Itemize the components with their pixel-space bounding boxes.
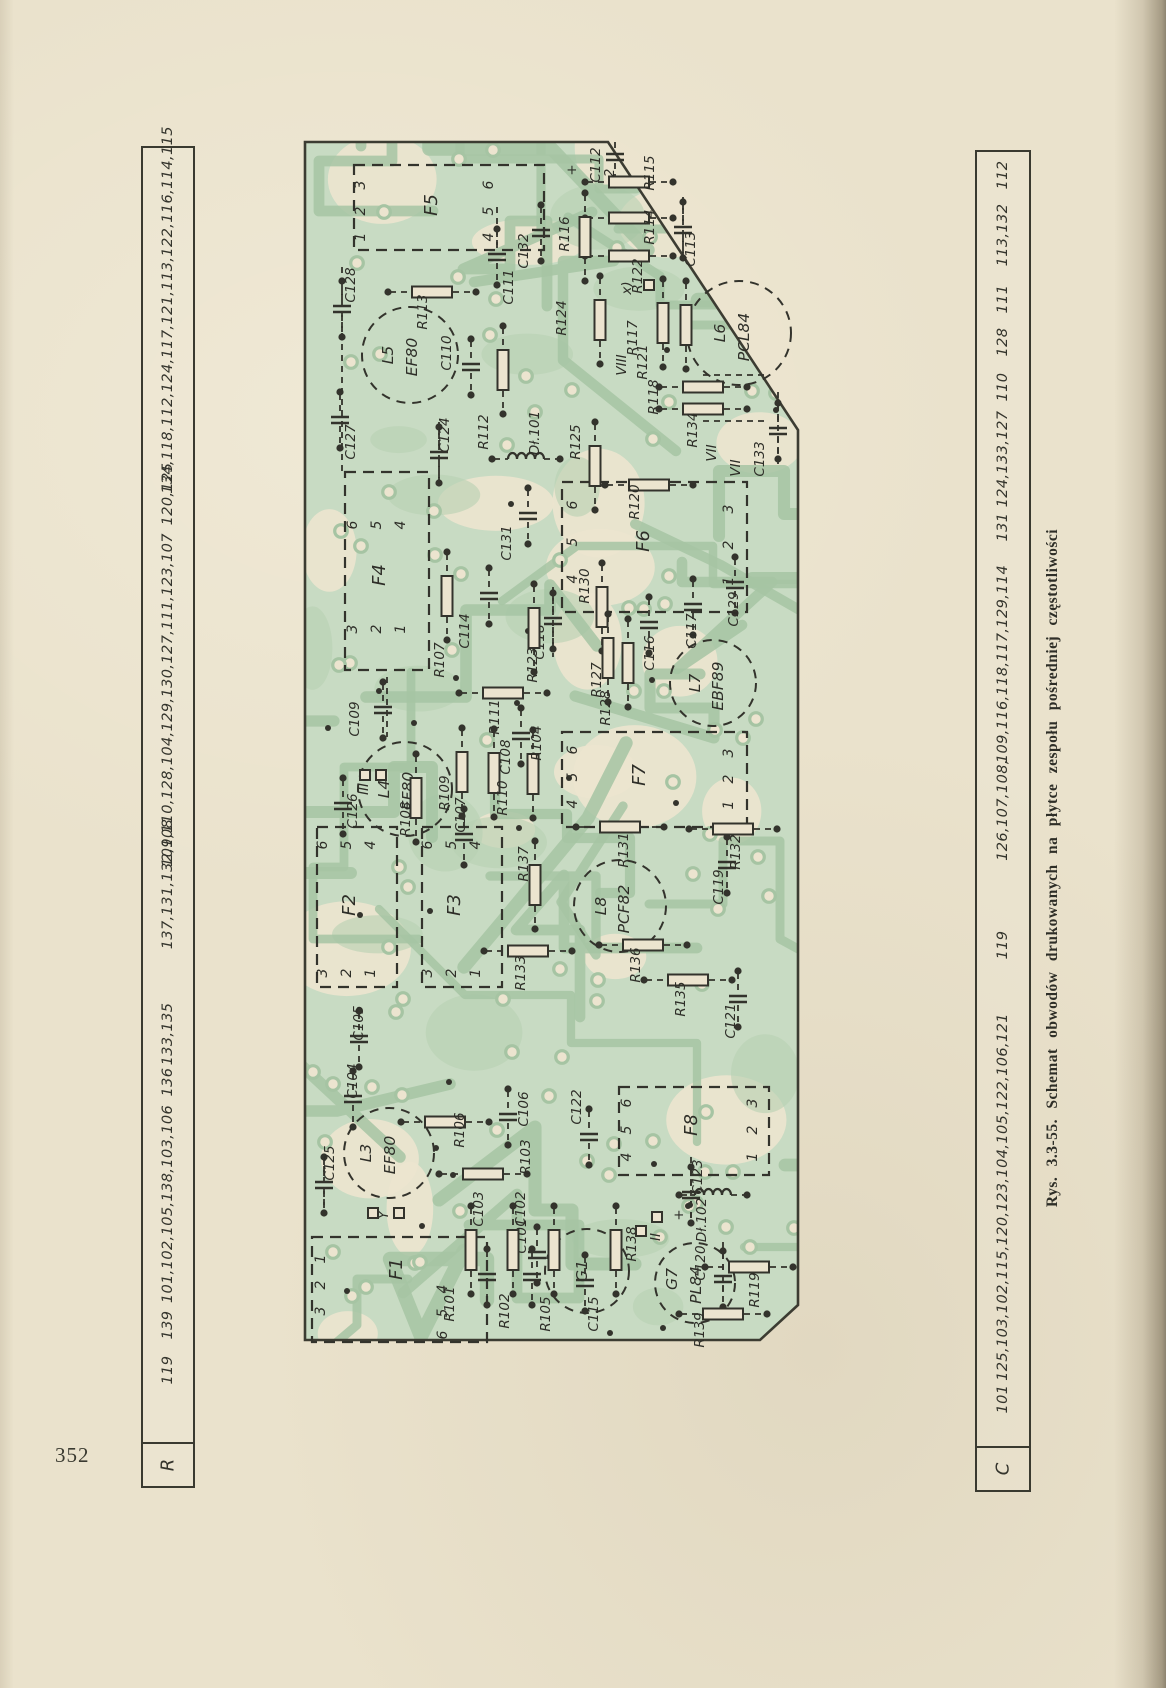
component-label-R128: R128 (598, 690, 614, 725)
r-index-group: 139 (160, 1311, 176, 1340)
pad (628, 685, 641, 698)
solder-dot (683, 941, 690, 948)
solder-dot (499, 322, 506, 329)
pad (506, 1046, 519, 1059)
solder-dot (485, 564, 492, 571)
c-index-group: 109,116,118,117,129,114 (995, 565, 1011, 763)
component-label-R107: R107 (432, 642, 448, 678)
component-label-R123: R123 (525, 647, 541, 682)
solder-dot (458, 812, 465, 819)
c-index-group: 125,103,102,115,120,123,104,105,122,106,… (995, 1013, 1011, 1381)
resistor-body (658, 303, 669, 343)
tube-label: EF80 (403, 338, 421, 377)
solder-dot (596, 360, 603, 367)
solder-dot (550, 1202, 557, 1209)
connector-label: F4 (369, 564, 390, 586)
pin-label: 2 (721, 774, 737, 783)
solder-dot (467, 1202, 474, 1209)
pin-label: 3 (721, 505, 737, 514)
pad (752, 851, 765, 864)
tube-label: L6 (711, 324, 729, 343)
pin-label: 6 (565, 500, 581, 509)
component-label-C128: C128 (343, 267, 359, 302)
solder-dot (504, 1085, 511, 1092)
r-index-group: 101,102,105,138,103,106 (160, 1105, 176, 1303)
component-label-R139: R139 (692, 1312, 708, 1347)
pin-label: 5 (369, 520, 385, 529)
resistor-body (508, 1230, 519, 1270)
solder-dot (719, 1247, 726, 1254)
component-label-C103: C103 (471, 1191, 487, 1226)
solder-dot (504, 1141, 511, 1148)
pin-label: 2 (369, 624, 385, 633)
pad (603, 1169, 616, 1182)
solder-dot (731, 553, 738, 560)
c-index-group: 113,132 (995, 204, 1011, 267)
solder-dot (376, 688, 382, 694)
component-label-R115: R115 (642, 155, 658, 190)
pin-label: 4 (565, 800, 581, 809)
solder-dot (743, 1191, 750, 1198)
c-index-group: 124,133,127 (995, 411, 1011, 508)
solder-dot (655, 405, 662, 412)
pad (487, 144, 500, 157)
pad-square (636, 1226, 646, 1236)
pin-label: 6 (565, 745, 581, 754)
component-label-Dł.102: Dł.102 (694, 1198, 710, 1242)
solder-dot (595, 941, 602, 948)
c-index-group: 101 (995, 1385, 1011, 1414)
solder-dot (483, 1245, 490, 1252)
solder-dot (598, 559, 605, 566)
solder-dot (453, 675, 459, 681)
solder-dot (669, 252, 676, 259)
pad (345, 356, 358, 369)
pin-label: 1 (468, 969, 484, 978)
pin-label: 4 (481, 233, 497, 242)
solder-dot (435, 1170, 442, 1177)
solder-dot (734, 967, 741, 974)
component-label-R109: R109 (437, 775, 453, 810)
annotation-text: x) (619, 281, 635, 295)
pin-label: 3 (420, 969, 436, 978)
solder-dot (612, 1202, 619, 1209)
solder-dot (581, 178, 588, 185)
r-index-table: 134,118,112,124,117,121,113,122,116,114,… (141, 146, 195, 1488)
tube-label: L4 (375, 780, 393, 799)
pad (744, 1241, 757, 1254)
solder-dot (581, 1251, 588, 1258)
component-label-C129: C129 (726, 591, 742, 626)
pad (396, 1089, 409, 1102)
resistor-body (623, 643, 634, 683)
resistor-body (442, 576, 453, 616)
resistor-body (729, 1262, 769, 1273)
pin-label: 4 (468, 841, 484, 850)
pin-label: 2 (339, 968, 355, 977)
solder-dot (549, 589, 556, 596)
pad-square (644, 280, 654, 290)
solder-dot (537, 257, 544, 264)
c-index-group: 131 (995, 513, 1011, 542)
pad (491, 1124, 504, 1137)
pad (393, 861, 406, 874)
pad (750, 713, 763, 726)
c-index-group: 111 (995, 285, 1011, 314)
solder-dot (488, 455, 495, 462)
pin-label: 6 (435, 1330, 451, 1339)
pin-label: 5 (619, 1125, 635, 1134)
tube-label: EBF89 (709, 661, 727, 710)
solder-dot (467, 335, 474, 342)
solder-dot (412, 750, 419, 757)
tube-label: G1 (573, 1260, 591, 1282)
pad (520, 370, 533, 383)
pad (355, 540, 368, 553)
solder-dot (533, 1279, 540, 1286)
component-label-C127: C127 (343, 424, 359, 460)
component-label-C125: C125 (322, 1145, 338, 1180)
component-label-C116: C116 (642, 635, 658, 670)
c-index-group: 126,107,108, (995, 759, 1011, 861)
board-patch (750, 201, 809, 233)
solder-dot (581, 277, 588, 284)
r-index-group: 120,125 (160, 463, 176, 526)
solder-dot (774, 399, 781, 406)
solder-dot (460, 861, 467, 868)
solder-dot (530, 580, 537, 587)
solder-dot (524, 484, 531, 491)
pad (481, 734, 494, 747)
solder-dot (384, 288, 391, 295)
pad (687, 868, 700, 881)
solder-dot (669, 178, 676, 185)
solder-dot (467, 391, 474, 398)
solder-dot (472, 288, 479, 295)
pad (566, 384, 579, 397)
pad (720, 1221, 733, 1234)
connector-label: F5 (421, 194, 442, 216)
component-label-C124: C124 (437, 417, 453, 452)
solder-dot (339, 830, 346, 837)
component-label-R116: R116 (557, 216, 573, 251)
solder-dot (531, 925, 538, 932)
pad (378, 206, 391, 219)
solder-dot (591, 418, 598, 425)
tube-label: EF80 (381, 1136, 399, 1175)
solder-dot (537, 201, 544, 208)
resistor-body (508, 946, 548, 957)
component-label-R124: R124 (554, 300, 570, 335)
component-label-R120: R120 (627, 484, 643, 519)
solder-dot (773, 825, 780, 832)
solder-dot (675, 1310, 682, 1317)
solder-dot (624, 615, 631, 622)
page-gutter-shadow (0, 0, 14, 1688)
solder-dot (789, 1263, 796, 1270)
pad (727, 1166, 740, 1179)
solder-dot (649, 677, 655, 683)
solder-dot (673, 800, 679, 806)
component-label-C109: C109 (347, 701, 363, 736)
solder-dot (524, 540, 531, 547)
pad (383, 486, 396, 499)
component-label-R113: R113 (415, 294, 431, 329)
pad (663, 396, 676, 409)
pin-label: 5 (339, 840, 355, 849)
pin-label: 2 (353, 206, 369, 215)
connector-label: F7 (629, 764, 650, 786)
solder-dot (679, 198, 686, 205)
pad (554, 554, 567, 567)
pad (501, 439, 514, 452)
pin-label: 3 (721, 749, 737, 758)
solder-dot (455, 689, 462, 696)
pad (360, 1281, 373, 1294)
component-label-R108: R108 (398, 801, 414, 836)
annotation-text: VIII (614, 354, 630, 375)
pin-label: 5 (444, 840, 460, 849)
pad-square (368, 1208, 378, 1218)
pad (383, 941, 396, 954)
solder-dot (446, 1079, 452, 1085)
solder-dot (743, 383, 750, 390)
resistor-body (498, 350, 509, 390)
solder-dot (528, 1301, 535, 1308)
pin-label: 2 (721, 540, 737, 549)
c-table-header-cell: C (977, 1446, 1029, 1490)
solder-dot (664, 347, 670, 353)
solder-dot (344, 1288, 350, 1294)
component-label-R101: R101 (442, 1286, 458, 1321)
solder-dot (517, 760, 524, 767)
annotation-text: + (564, 164, 580, 175)
solder-dot (499, 410, 506, 417)
solder-dot (659, 363, 666, 370)
pin-label: 3 (353, 181, 369, 190)
pin-label: 4 (393, 521, 409, 530)
solder-dot (556, 455, 563, 462)
component-label-R125: R125 (568, 424, 584, 459)
board-blob (370, 426, 427, 453)
solder-dot (338, 333, 345, 340)
pad (554, 963, 567, 976)
component-label-C126: C126 (345, 793, 361, 828)
component-label-R119: R119 (747, 1272, 763, 1307)
solder-dot (493, 281, 500, 288)
resistor-body (529, 608, 540, 648)
solder-dot (659, 275, 666, 282)
pin-label: 3 (315, 969, 331, 978)
pad (397, 993, 410, 1006)
component-label-C105: C105 (351, 1005, 367, 1040)
solder-dot (624, 703, 631, 710)
pin-label: 6 (345, 520, 361, 529)
pad (556, 1051, 569, 1064)
component-label-C104: C104 (345, 1063, 361, 1098)
component-label-C114: C114 (457, 613, 473, 648)
pin-label: 5 (565, 537, 581, 546)
pad-square (360, 770, 370, 780)
pad-square (394, 1208, 404, 1218)
resistor-body (683, 382, 723, 393)
connector-label: F3 (444, 894, 465, 916)
solder-dot (763, 1310, 770, 1317)
pad (592, 974, 605, 987)
annotation-text: II (648, 1233, 664, 1241)
c-index-group: 112 (995, 161, 1011, 190)
pin-label: 3 (313, 1307, 329, 1316)
component-label-R132: R132 (728, 834, 744, 869)
solder-dot (572, 823, 579, 830)
resistor-body (549, 1230, 560, 1270)
component-label-C119: C119 (711, 869, 727, 904)
solder-dot (483, 1301, 490, 1308)
solder-dot (660, 823, 667, 830)
solder-dot (533, 1223, 540, 1230)
component-label-C132: C132 (516, 233, 532, 268)
pin-label: 4 (363, 841, 379, 850)
solder-dot (596, 272, 603, 279)
solder-dot (517, 704, 524, 711)
tube-label: L5 (379, 346, 397, 365)
solder-dot (339, 774, 346, 781)
component-label-R106: R106 (452, 1112, 468, 1147)
tube-label: PCF82 (615, 885, 633, 934)
solder-dot (485, 1118, 492, 1125)
pin-label: 1 (353, 233, 369, 242)
r-index-group: 109,110,128,104,129,130,127,111,123,107 (160, 533, 176, 867)
solder-dot (349, 1123, 356, 1130)
component-label-C111: C111 (501, 269, 517, 304)
pin-label: 2 (745, 1125, 761, 1134)
pad (333, 659, 346, 672)
c-index-group: 110 (995, 373, 1011, 402)
resistor-body (466, 1230, 477, 1270)
pin-label: 1 (313, 1255, 329, 1264)
r-index-group: 134,118,112,124,117,121,113,122,116,114,… (160, 126, 176, 494)
resistor-body (681, 305, 692, 345)
solder-dot (490, 725, 497, 732)
solder-dot (493, 225, 500, 232)
solder-dot (645, 593, 652, 600)
tube-label: PCL84 (735, 313, 753, 362)
connector-label: F6 (633, 530, 654, 552)
pin-label: 1 (721, 801, 737, 810)
pad (659, 598, 672, 611)
pin-label: 2 (444, 968, 460, 977)
solder-dot (601, 481, 608, 488)
pad (647, 1135, 660, 1148)
component-label-R131: R131 (616, 832, 632, 867)
c-table-header: C (993, 1463, 1014, 1476)
solder-dot (435, 479, 442, 486)
component-label-R121: R121 (635, 344, 651, 379)
solder-dot (774, 455, 781, 462)
r-index-group: 119 (160, 1356, 176, 1385)
pad (327, 1078, 340, 1091)
solder-dot (427, 908, 433, 914)
solder-dot (585, 1105, 592, 1112)
component-label-C115: C115 (586, 1296, 602, 1331)
pin-label: 1 (745, 1153, 761, 1162)
component-label-C133: C133 (752, 441, 768, 476)
solder-dot (443, 548, 450, 555)
r-table-header-cell: R (143, 1442, 193, 1486)
annotation-text: VII (728, 459, 744, 476)
component-label-R134: R134 (685, 412, 701, 447)
component-label-R137: R137 (516, 846, 532, 882)
pin-label: 4 (619, 1153, 635, 1162)
tube-label: L7 (686, 674, 704, 693)
annotation-text: III (356, 783, 372, 795)
page-number: 352 (55, 1443, 90, 1468)
pad (402, 881, 415, 894)
component-label-C117: C117 (684, 613, 700, 649)
pin-label: 1 (363, 969, 379, 978)
solder-dot (728, 976, 735, 983)
pad (452, 271, 465, 284)
pad (366, 1081, 379, 1094)
solder-dot (651, 1161, 657, 1167)
resistor-body (457, 752, 468, 792)
scanned-book-page: 134,118,112,124,117,121,113,122,116,114,… (0, 0, 1166, 1688)
solder-dot (687, 1202, 693, 1208)
solder-dot (701, 1263, 708, 1270)
resistor-body (463, 1169, 503, 1180)
c-index-group: 119 (995, 931, 1011, 960)
pin-label: 1 (393, 625, 409, 634)
solder-dot (379, 734, 386, 741)
pad (484, 329, 497, 342)
solder-dot (320, 1209, 327, 1216)
resistor-body (597, 587, 608, 627)
c-index-table: 112113,132111128110124,133,127131109,116… (975, 150, 1031, 1492)
pad (454, 1205, 467, 1218)
pad (720, 190, 733, 203)
solder-dot (516, 825, 522, 831)
connector-label: F8 (681, 1114, 702, 1136)
solder-dot (529, 814, 536, 821)
component-label-C121: C121 (723, 1003, 739, 1038)
resistor-body (600, 822, 640, 833)
solder-dot (549, 645, 556, 652)
r-index-group: 136 (160, 1068, 176, 1097)
solder-dot (660, 1325, 666, 1331)
solder-dot (685, 825, 692, 832)
solder-dot (612, 1290, 619, 1297)
annotation-text: 2 (602, 169, 618, 178)
solder-dot (607, 1330, 613, 1336)
r-index-group: 137,131,132,108 (160, 819, 176, 950)
pad (543, 1090, 556, 1103)
solder-dot (531, 837, 538, 844)
tube-label: G7 (663, 1268, 681, 1290)
component-label-R103: R103 (518, 1139, 534, 1174)
component-label-R135: R135 (673, 981, 689, 1016)
pad (390, 1006, 403, 1019)
component-label-Dł.101: Dł.101 (527, 411, 543, 455)
component-label-R133: R133 (513, 955, 529, 990)
solder-dot (397, 1118, 404, 1125)
solder-dot (581, 189, 588, 196)
solder-dot (743, 405, 750, 412)
component-label-R130: R130 (577, 568, 593, 603)
pad (453, 153, 466, 166)
pin-label: 6 (481, 180, 497, 189)
component-label-C113: C113 (683, 231, 699, 266)
resistor-body (580, 217, 591, 257)
